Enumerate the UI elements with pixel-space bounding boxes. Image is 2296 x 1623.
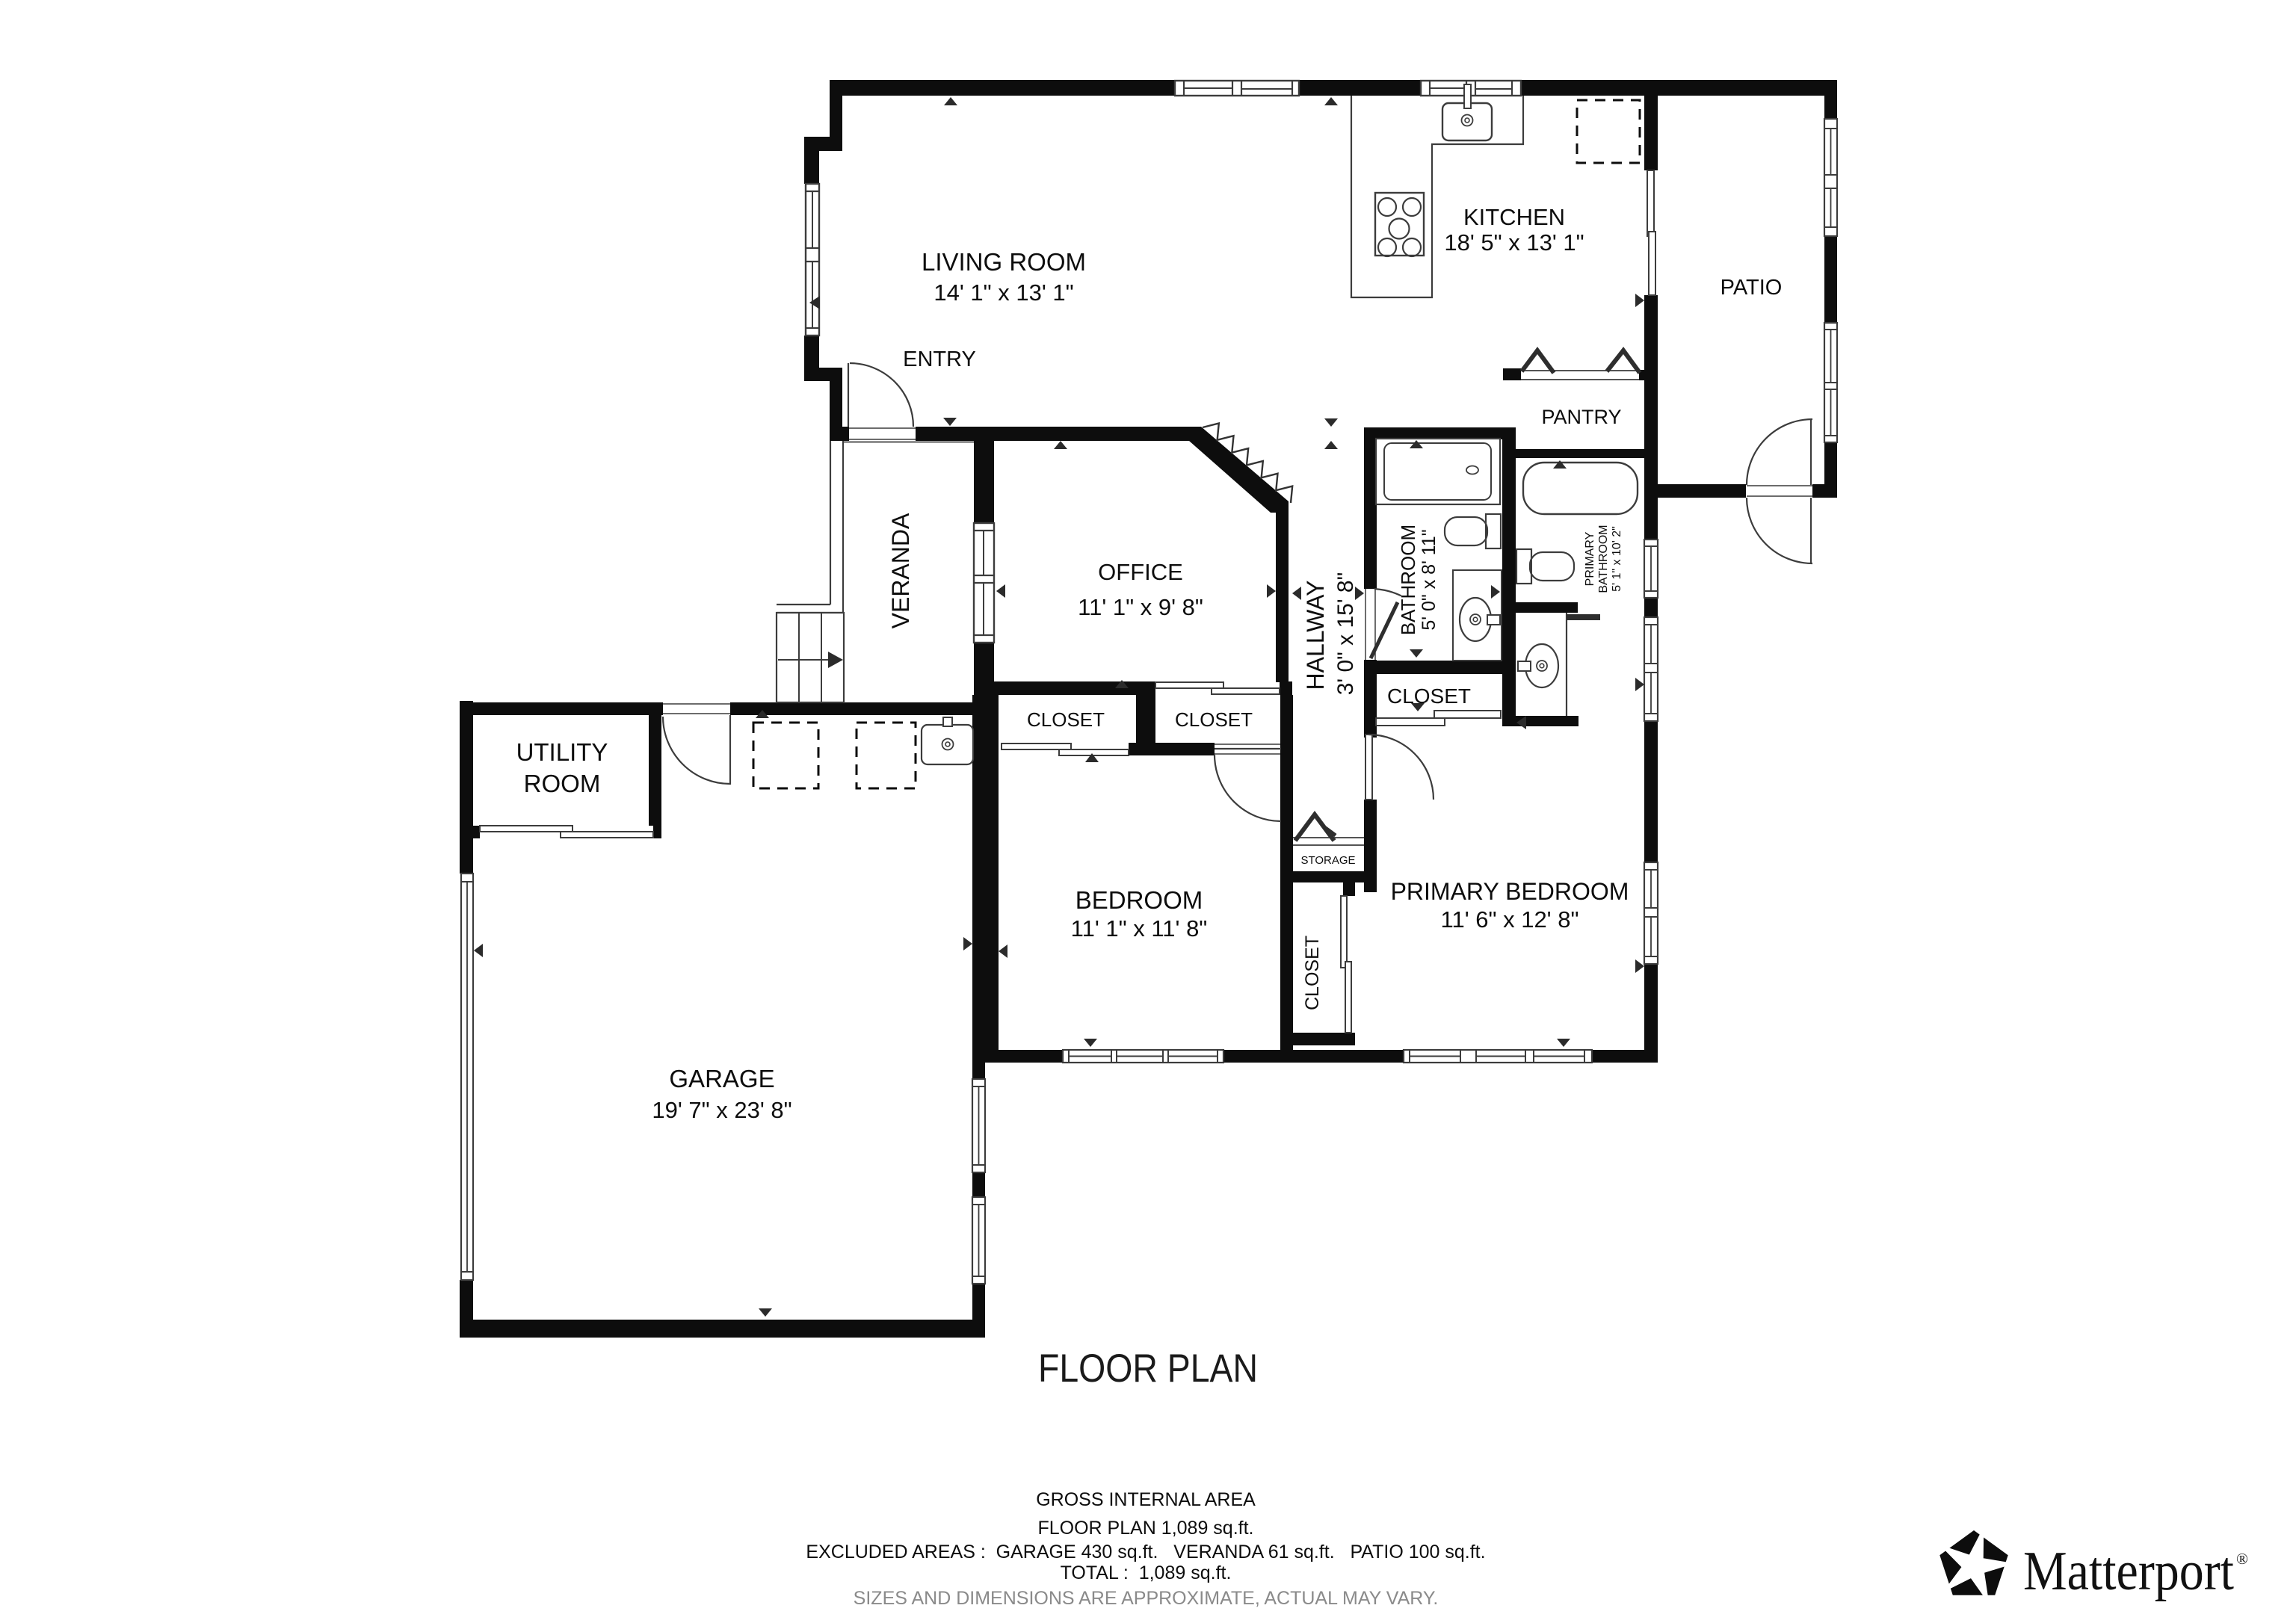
svg-text:GROSS INTERNAL AREA: GROSS INTERNAL AREA	[1036, 1489, 1256, 1510]
svg-text:LIVING ROOM: LIVING ROOM	[922, 248, 1086, 276]
svg-text:EXCLUDED AREAS : GARAGE 430 s: EXCLUDED AREAS : GARAGE 430 sq.ft. VERAN…	[806, 1542, 1485, 1562]
svg-text:18' 5" x 13' 1": 18' 5" x 13' 1"	[1444, 229, 1584, 256]
svg-text:Matterport: Matterport	[2023, 1541, 2234, 1602]
svg-text:CLOSET: CLOSET	[1302, 936, 1323, 1010]
svg-text:OFFICE: OFFICE	[1098, 559, 1183, 585]
svg-text:BATHROOM: BATHROOM	[1597, 525, 1610, 593]
svg-text:TOTAL : 1,089 sq.ft.: TOTAL : 1,089 sq.ft.	[1061, 1562, 1232, 1583]
svg-text:FLOOR PLAN: FLOOR PLAN	[1038, 1347, 1258, 1391]
svg-text:GARAGE: GARAGE	[669, 1065, 774, 1092]
svg-text:11' 1" x 9' 8": 11' 1" x 9' 8"	[1078, 594, 1203, 620]
svg-text:UTILITY: UTILITY	[516, 738, 608, 766]
svg-text:14' 1" x 13' 1": 14' 1" x 13' 1"	[933, 279, 1073, 306]
svg-text:11' 6" x 12' 8": 11' 6" x 12' 8"	[1441, 906, 1579, 933]
svg-text:5' 0" x 8' 11": 5' 0" x 8' 11"	[1419, 529, 1439, 630]
svg-text:ENTRY: ENTRY	[903, 347, 976, 371]
svg-text:PANTRY: PANTRY	[1541, 406, 1621, 428]
svg-text:KITCHEN: KITCHEN	[1463, 204, 1565, 230]
svg-text:PRIMARY: PRIMARY	[1584, 531, 1596, 586]
svg-text:CLOSET: CLOSET	[1387, 684, 1471, 708]
svg-text:19' 7" x 23' 8": 19' 7" x 23' 8"	[652, 1097, 791, 1123]
svg-text:VERANDA: VERANDA	[887, 513, 914, 628]
svg-text:PATIO: PATIO	[1721, 276, 1783, 300]
svg-text:STORAGE: STORAGE	[1300, 854, 1355, 867]
svg-text:SIZES AND DIMENSIONS ARE APPRO: SIZES AND DIMENSIONS ARE APPROXIMATE, AC…	[854, 1588, 1439, 1609]
svg-text:3' 0" x 15' 8": 3' 0" x 15' 8"	[1333, 572, 1358, 696]
svg-text:BATHROOM: BATHROOM	[1397, 525, 1419, 635]
svg-text:HALLWAY: HALLWAY	[1302, 581, 1329, 690]
svg-text:CLOSET: CLOSET	[1027, 708, 1105, 731]
svg-text:ROOM: ROOM	[524, 770, 601, 797]
svg-text:BEDROOM: BEDROOM	[1076, 886, 1203, 914]
svg-text:5' 1" x 10' 2": 5' 1" x 10' 2"	[1611, 526, 1623, 592]
svg-text:11' 1" x 11' 8": 11' 1" x 11' 8"	[1071, 915, 1208, 942]
svg-text:PRIMARY BEDROOM: PRIMARY BEDROOM	[1391, 878, 1629, 905]
svg-text:FLOOR PLAN 1,089 sq.ft.: FLOOR PLAN 1,089 sq.ft.	[1037, 1518, 1253, 1539]
svg-text:CLOSET: CLOSET	[1175, 708, 1253, 731]
svg-text:®: ®	[2236, 1550, 2248, 1568]
